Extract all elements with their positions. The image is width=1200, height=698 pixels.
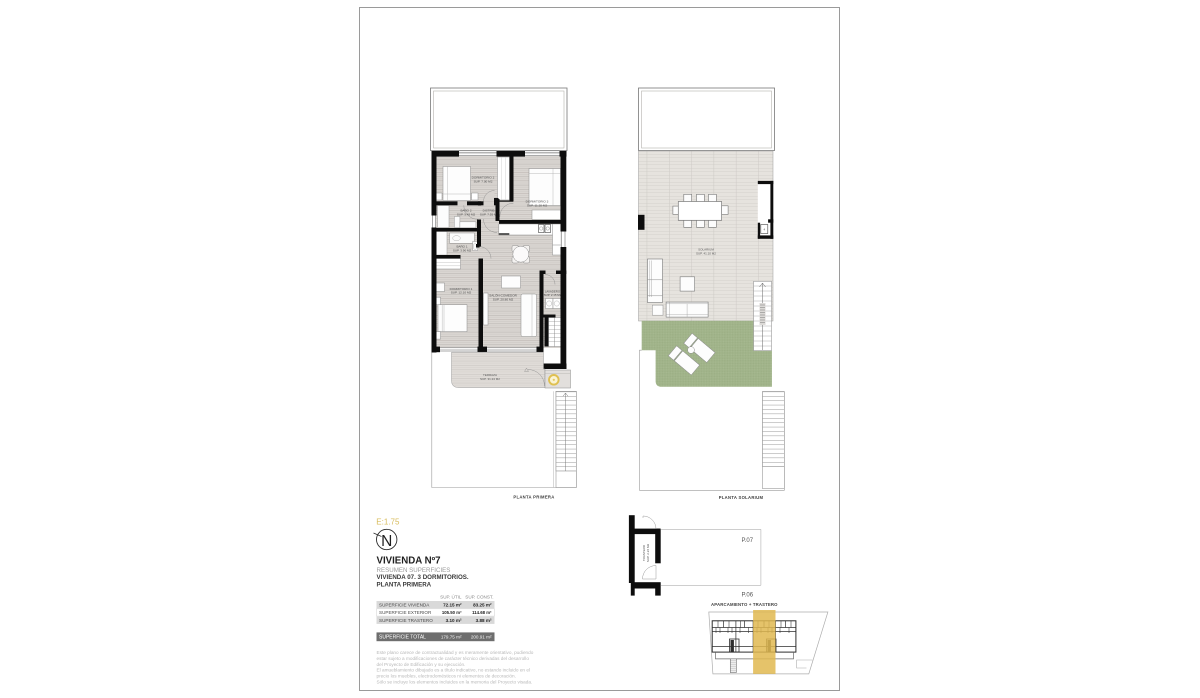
svg-text:179.75 m²: 179.75 m²	[441, 634, 462, 639]
svg-text:72.15 m²: 72.15 m²	[443, 602, 462, 607]
svg-text:VIVIENDA Nº7: VIVIENDA Nº7	[377, 556, 441, 567]
svg-text:P.06: P.06	[742, 593, 754, 599]
svg-text:200.91 m²: 200.91 m²	[471, 634, 492, 639]
svg-text:83.25 m²: 83.25 m²	[473, 602, 492, 607]
svg-text:SUPERFICIE EXTERIOR: SUPERFICIE EXTERIOR	[379, 610, 432, 615]
svg-text:RESUMEN SUPERFICIES: RESUMEN SUPERFICIES	[377, 567, 451, 574]
svg-text:precio los muebles, electrodom: precio los muebles, electrodomésticos ni…	[377, 674, 516, 679]
svg-text:APARCAMIENTO + TRASTERO: APARCAMIENTO + TRASTERO	[711, 602, 778, 607]
svg-text:SUPERFICIE TOTAL: SUPERFICIE TOTAL	[379, 634, 426, 640]
svg-text:SUP. 20.80 M2: SUP. 20.80 M2	[493, 297, 514, 301]
svg-text:VIVIENDA 07. 3 DORMITORIOS.: VIVIENDA 07. 3 DORMITORIOS.	[377, 574, 469, 581]
svg-text:SUPERFICIE VIVIENDA: SUPERFICIE VIVIENDA	[379, 602, 430, 607]
svg-text:PLANTA PRIMERA: PLANTA PRIMERA	[377, 581, 432, 588]
svg-text:N: N	[381, 533, 392, 550]
svg-text:SUP. 31.24 M2: SUP. 31.24 M2	[480, 377, 500, 381]
svg-text:SUP. 3.90 M2: SUP. 3.90 M2	[453, 248, 472, 252]
svg-text:SUP. 2.15 M2: SUP. 2.15 M2	[544, 293, 562, 297]
svg-text:SUPERFICIE TRASTERO: SUPERFICIE TRASTERO	[379, 618, 433, 623]
svg-text:Sólo se incluye los elementos: Sólo se incluye los elementos incluidos …	[377, 680, 533, 685]
svg-text:SUP. 11.20 M2: SUP. 11.20 M2	[527, 203, 548, 207]
svg-text:P.07: P.07	[742, 538, 754, 544]
svg-text:SUP. 3.45 M2: SUP. 3.45 M2	[457, 212, 476, 216]
svg-text:105.50 m²: 105.50 m²	[442, 610, 462, 615]
svg-text:SUP. ÚTIL: SUP. ÚTIL	[440, 594, 462, 600]
svg-text:SUP. 2.26 M2: SUP. 2.26 M2	[646, 544, 650, 563]
svg-text:3.10 m²: 3.10 m²	[446, 618, 462, 623]
svg-text:PLANTA PRIMERA: PLANTA PRIMERA	[513, 495, 554, 500]
svg-text:SUP. 12.10 M2: SUP. 12.10 M2	[451, 291, 472, 295]
svg-text:del Proyecto de Edificación y: del Proyecto de Edificación y su ejecuci…	[377, 662, 466, 667]
svg-text:estar sujeto a modificaciones: estar sujeto a modificaciones de carácte…	[377, 656, 530, 661]
svg-text:PLANTA SOLARIUM: PLANTA SOLARIUM	[719, 495, 764, 500]
svg-text:El amueblamiento dibujado es a: El amueblamiento dibujado es a título in…	[377, 668, 531, 673]
svg-text:E:1.75: E:1.75	[376, 517, 400, 526]
svg-text:SUP. 7.00 M2: SUP. 7.00 M2	[474, 179, 493, 183]
svg-text:3.88 m²: 3.88 m²	[476, 618, 492, 623]
svg-text:SUP. 41.10 M2: SUP. 41.10 M2	[696, 251, 716, 255]
svg-text:114.68 m²: 114.68 m²	[472, 610, 492, 615]
svg-text:Este plano carece de contractu: Este plano carece de contractualidad y e…	[377, 650, 534, 655]
svg-text:SUP. CONST.: SUP. CONST.	[465, 595, 493, 600]
